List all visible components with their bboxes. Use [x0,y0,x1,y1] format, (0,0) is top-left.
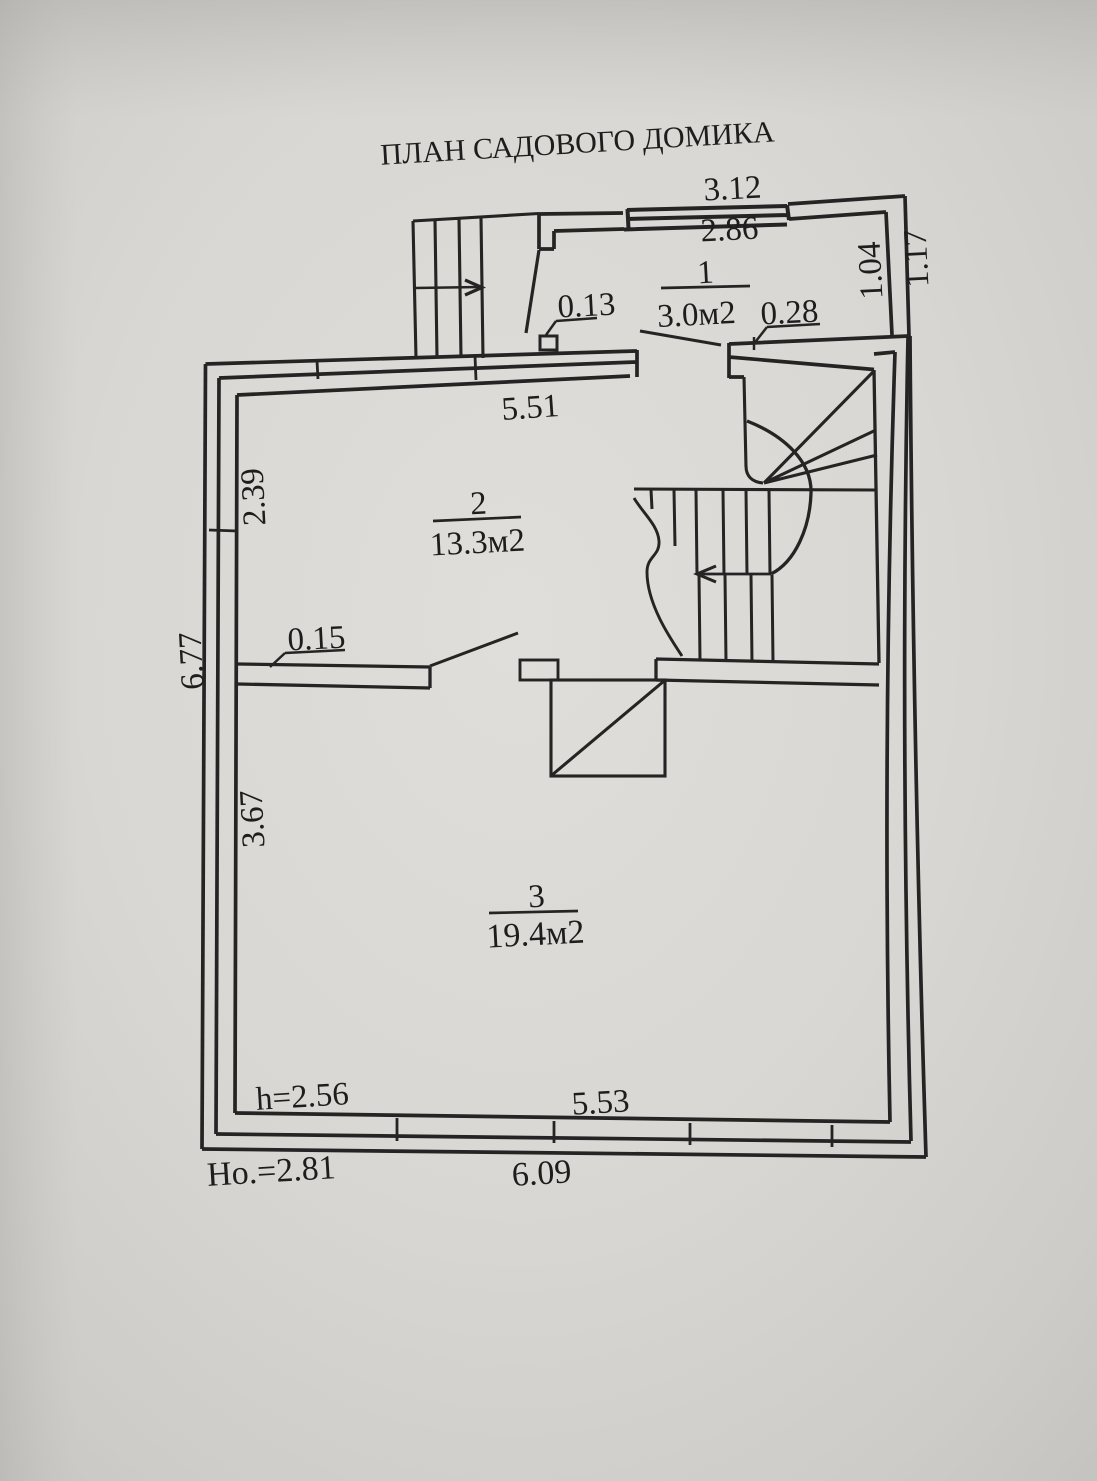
svg-text:5.51: 5.51 [500,388,560,428]
svg-text:5.53: 5.53 [571,1083,631,1122]
svg-text:3: 3 [527,879,545,916]
svg-text:6.09: 6.09 [511,1153,573,1194]
svg-text:13.3м2: 13.3м2 [429,523,526,564]
svg-text:Но.=2.81: Но.=2.81 [206,1149,337,1194]
svg-text:h=2.56: h=2.56 [255,1076,350,1118]
svg-text:0.13: 0.13 [557,287,617,326]
svg-text:2.86: 2.86 [700,211,760,250]
svg-text:3.67: 3.67 [234,789,273,849]
svg-text:1.17: 1.17 [898,229,937,289]
svg-text:2: 2 [469,486,487,523]
svg-text:1.04: 1.04 [852,241,891,301]
svg-text:3.12: 3.12 [703,170,763,209]
svg-text:6.77: 6.77 [173,631,212,691]
svg-text:1: 1 [696,255,714,292]
svg-text:19.4м2: 19.4м2 [486,913,586,955]
svg-text:2.39: 2.39 [235,467,274,527]
svg-text:0.15: 0.15 [287,620,347,659]
svg-text:0.28: 0.28 [760,294,820,333]
svg-text:3.0м2: 3.0м2 [656,295,736,335]
